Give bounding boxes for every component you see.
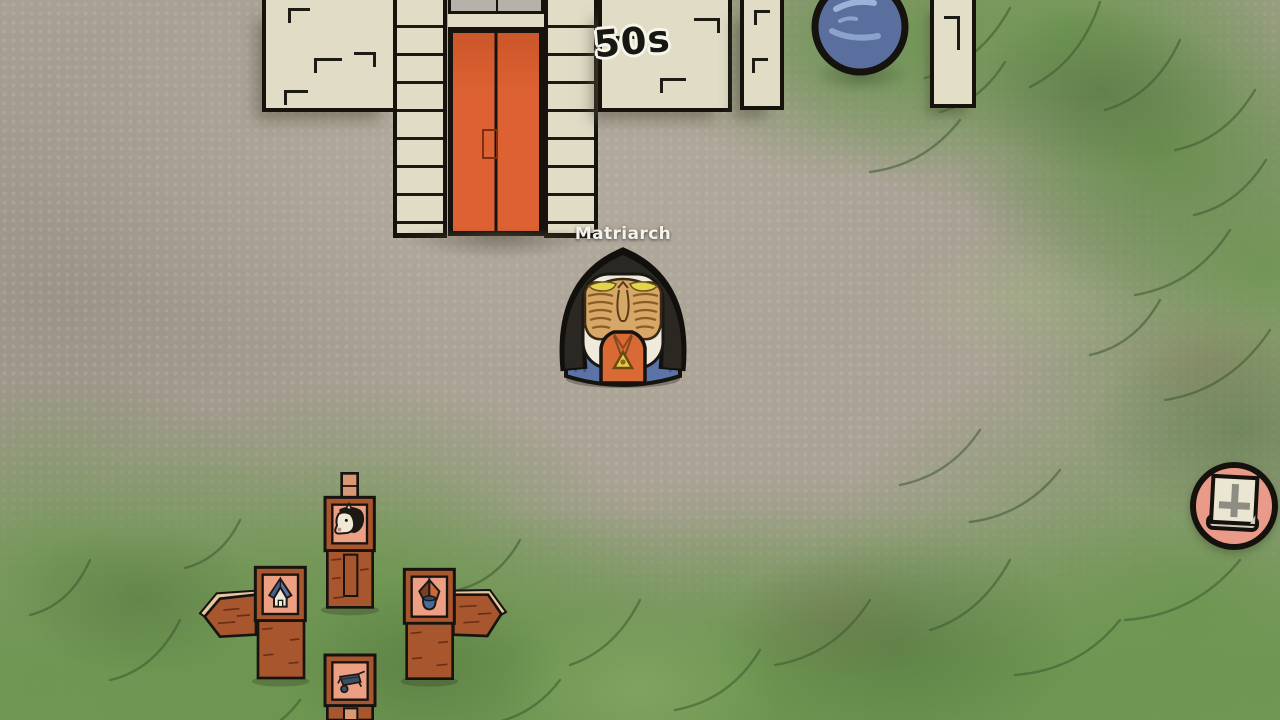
journal-button[interactable] bbox=[1190, 462, 1278, 550]
door-handle bbox=[482, 129, 498, 159]
signpost-east[interactable] bbox=[401, 569, 506, 686]
game-viewport: 50s Matriarch bbox=[0, 0, 1280, 720]
book-cross-icon bbox=[1190, 462, 1278, 550]
signpost-cluster bbox=[190, 460, 510, 720]
building-wall-gap-piece bbox=[740, 0, 784, 110]
arch-column-right bbox=[544, 0, 598, 238]
npc-matriarch[interactable]: Matriarch bbox=[556, 224, 690, 388]
npc-name-label: Matriarch bbox=[556, 224, 690, 244]
signpost-west[interactable] bbox=[200, 567, 309, 686]
door-transom bbox=[448, 0, 544, 14]
arch-column-left bbox=[393, 0, 447, 238]
building-wall-left bbox=[262, 0, 398, 112]
matriarch-sprite bbox=[556, 246, 690, 388]
blue-orb bbox=[810, 0, 910, 77]
currency-popup: 50s bbox=[592, 17, 672, 67]
orange-door[interactable] bbox=[448, 28, 544, 236]
signpost-north[interactable] bbox=[321, 473, 380, 615]
stone-pillar bbox=[930, 0, 976, 108]
signpost-south[interactable] bbox=[325, 655, 375, 720]
